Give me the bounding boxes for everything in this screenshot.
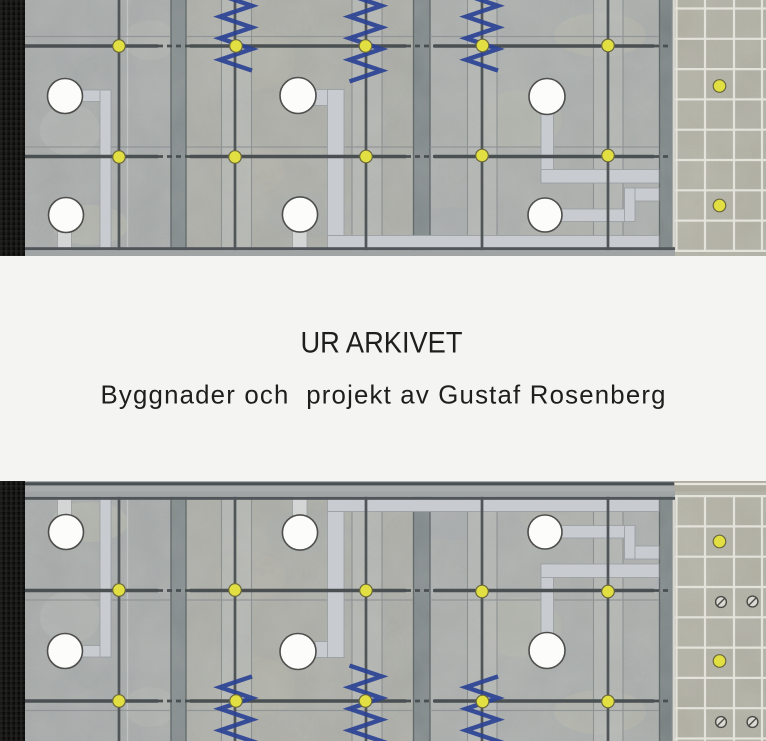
- svg-text:UR ARKIVET: UR ARKIVET: [301, 327, 463, 360]
- svg-text:Byggnader och projekt av Gust: Byggnader och projekt av Gustaf Rosenber…: [101, 382, 666, 410]
